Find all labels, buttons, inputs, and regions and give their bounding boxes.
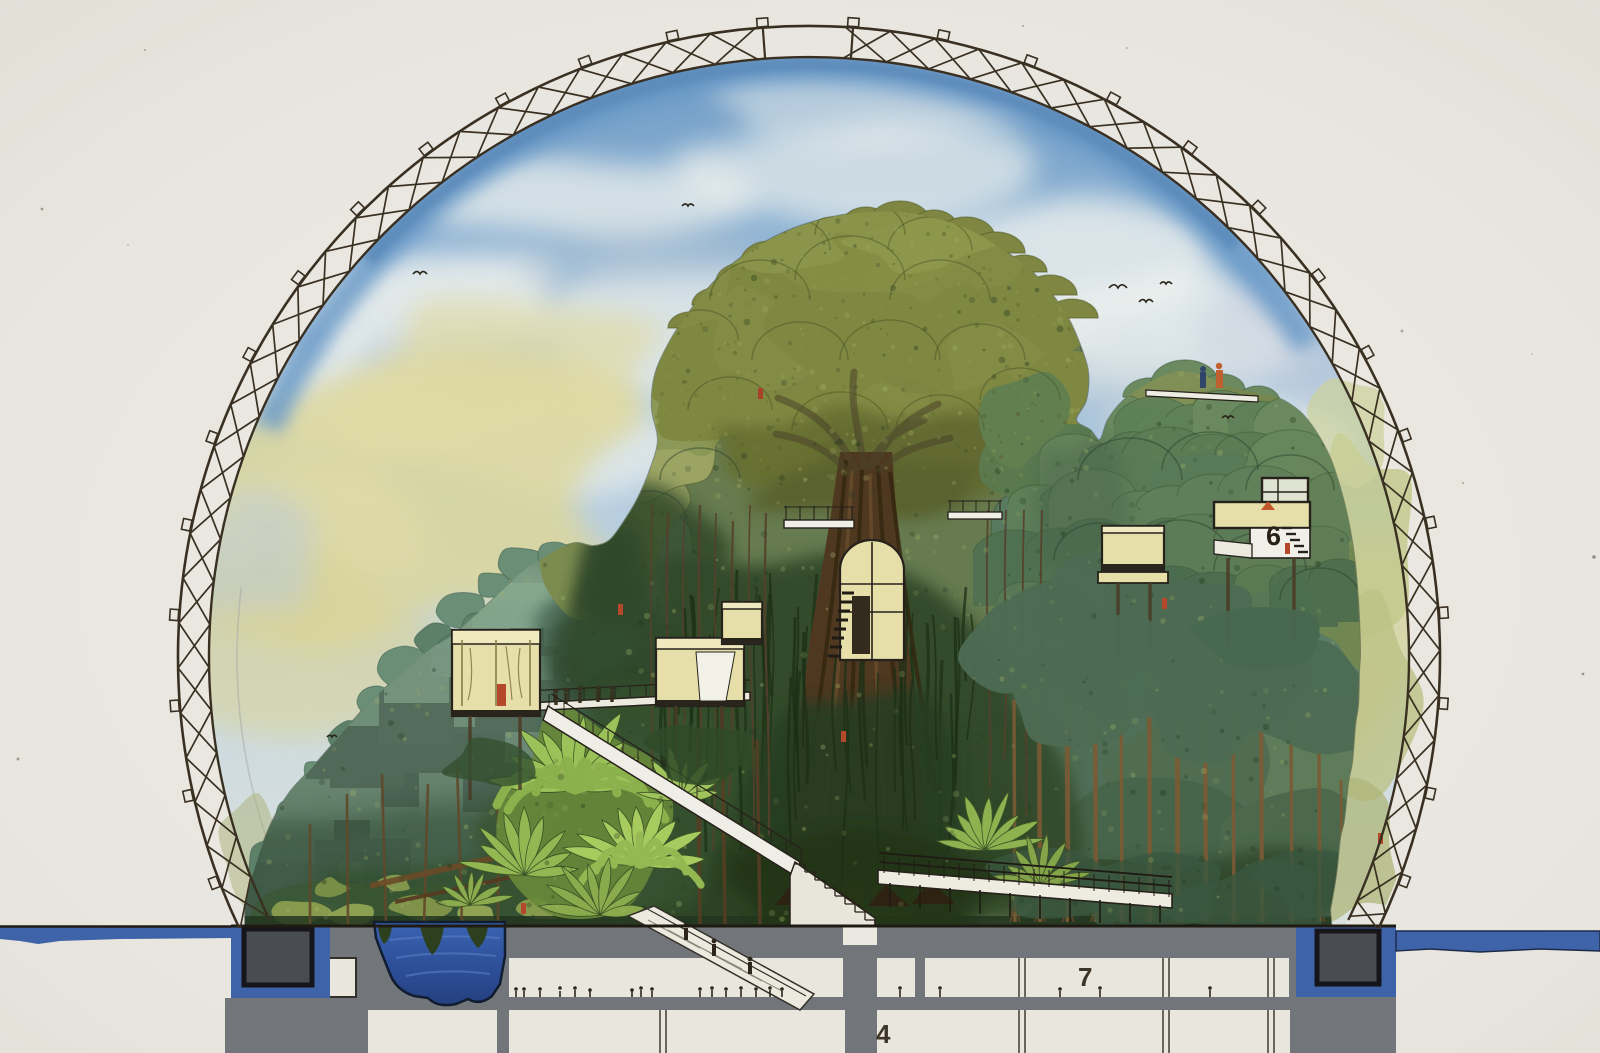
svg-text:6: 6 xyxy=(1266,521,1281,551)
svg-text:4: 4 xyxy=(876,1019,891,1049)
svg-text:7: 7 xyxy=(1078,962,1092,992)
